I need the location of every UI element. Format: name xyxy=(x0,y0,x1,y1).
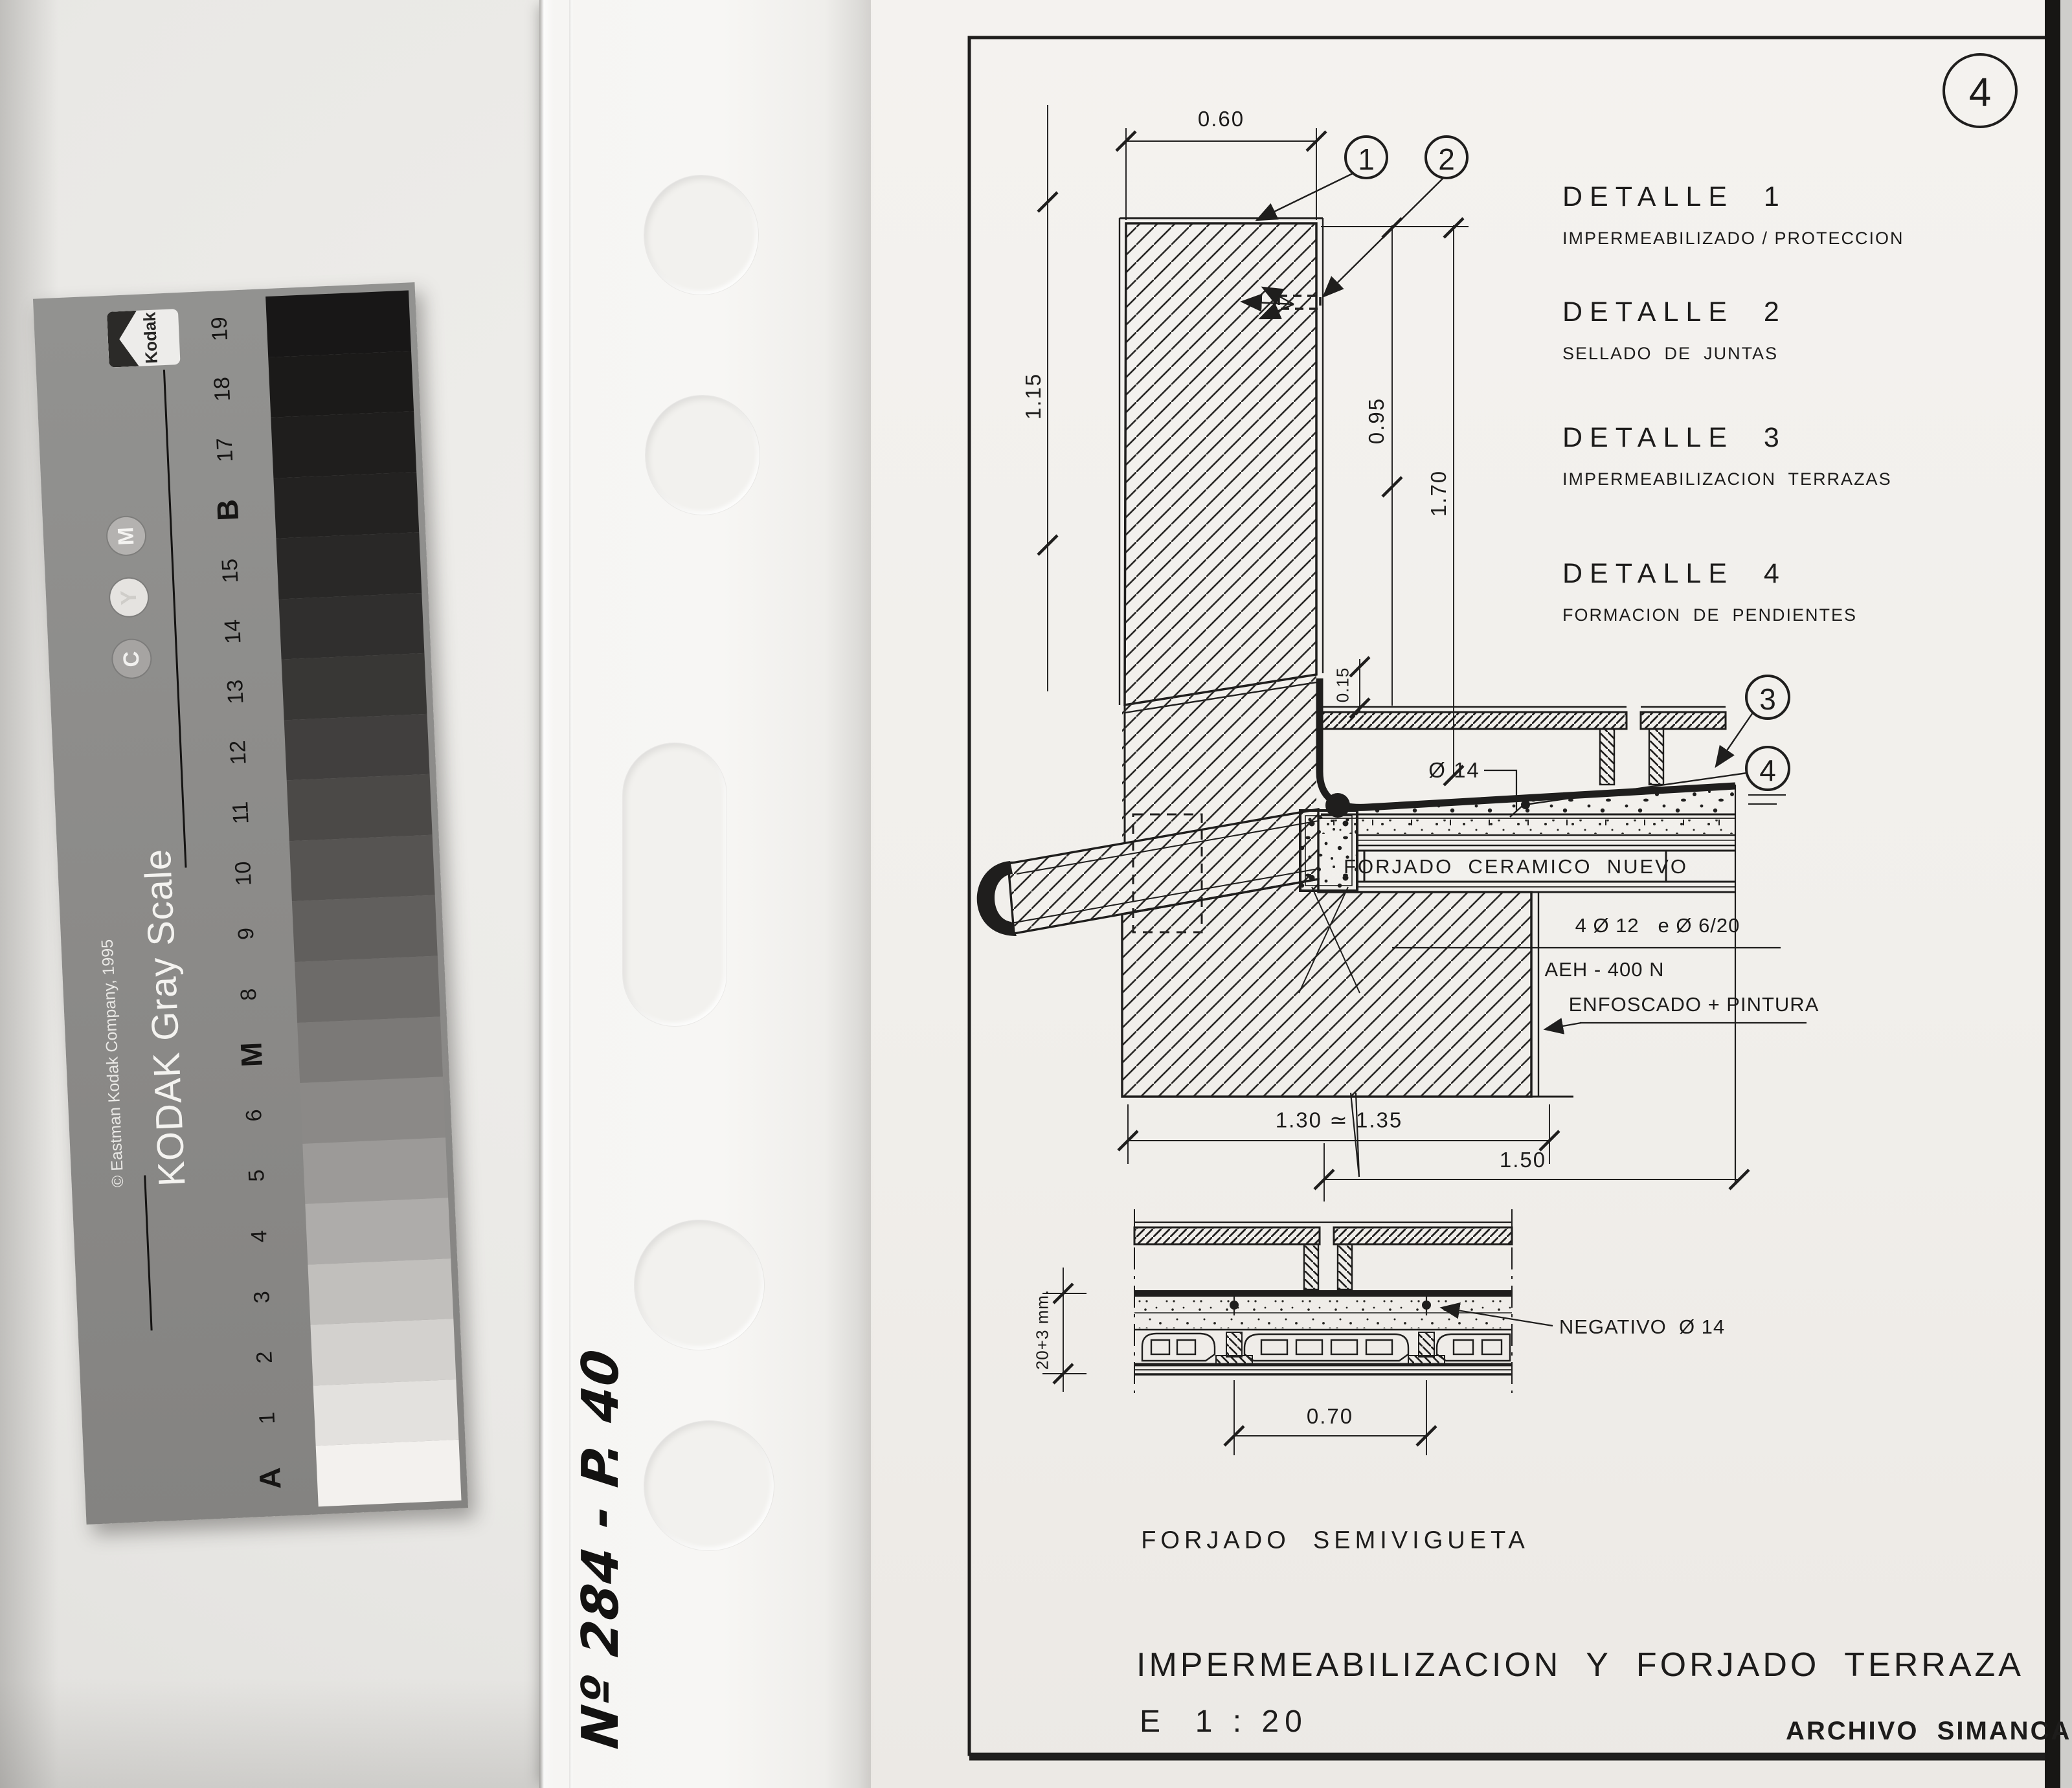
gray-scale-label: 18 xyxy=(208,373,236,405)
kodak-logo-text: Kodak xyxy=(140,312,162,364)
label-rebar: 4 Ø 12 e Ø 6/20 xyxy=(1575,914,1740,937)
callout-4: 4 xyxy=(1759,753,1776,788)
gray-scale-label: 10 xyxy=(230,858,257,890)
registration-circle-c: C xyxy=(112,639,151,678)
label-negative-rebar: NEGATIVO Ø 14 xyxy=(1559,1315,1725,1339)
gray-scale-label: B xyxy=(214,494,241,526)
legend-subtitle-2: SELLADO DE JUNTAS xyxy=(1562,344,1786,364)
gray-scale-label: 14 xyxy=(220,616,247,648)
gray-patch xyxy=(300,1077,445,1143)
gray-patch xyxy=(305,1198,451,1264)
punched-hole xyxy=(644,175,758,295)
dim-parapet-height-left: 1.15 xyxy=(1021,373,1046,419)
gray-scale-label: 11 xyxy=(227,797,254,829)
gray-patch xyxy=(295,955,440,1022)
dim-drain-diameter: Ø 14 xyxy=(1428,758,1480,783)
legend-item-1: DETALLE 1 IMPERMEABILIZADO / PROTECCION xyxy=(1562,181,1904,249)
gray-scale-label: 12 xyxy=(225,737,252,769)
gray-scale-label: 13 xyxy=(222,676,249,708)
gray-patch xyxy=(276,532,422,599)
callout-2: 2 xyxy=(1438,142,1455,177)
dim-wall-thickness: 1.30 ≃ 1.35 xyxy=(1276,1108,1402,1133)
gray-patch xyxy=(279,593,425,660)
gray-scale-label: 1 xyxy=(254,1402,281,1435)
title-block-scale: E 1 : 20 xyxy=(1140,1704,1308,1739)
gray-scale-label: 19 xyxy=(206,313,233,345)
label-wall-finish: ENFOSCADO + PINTURA xyxy=(1569,993,1819,1016)
gray-patch xyxy=(282,653,427,720)
dim-parapet-height-right: 0.95 xyxy=(1364,397,1389,444)
plastic-sleeve-strip: Nº 284 - P. 40 xyxy=(539,0,871,1788)
gray-scale-label: 5 xyxy=(243,1159,270,1192)
gray-patch xyxy=(316,1440,462,1506)
page-number: 4 xyxy=(1969,70,1991,116)
card-copyright: © Eastman Kodak Company, 1995 xyxy=(98,939,128,1187)
legend-subtitle-4: FORMACION DE PENDIENTES xyxy=(1562,605,1857,625)
legend-item-4: DETALLE 4 FORMACION DE PENDIENTES xyxy=(1562,558,1857,625)
punched-hole xyxy=(646,396,760,515)
gray-scale-label: M xyxy=(238,1038,265,1071)
gray-scale-label: 15 xyxy=(217,555,244,587)
callout-3: 3 xyxy=(1759,682,1776,717)
title-block-title: IMPERMEABILIZACION Y FORJADO TERRAZA xyxy=(1136,1646,2024,1684)
dim-total-height: 1.70 xyxy=(1426,470,1451,517)
card-rule-upper xyxy=(163,370,187,867)
gray-scale-label: 6 xyxy=(240,1099,267,1132)
label-section-name: FORJADO SEMIVIGUETA xyxy=(1141,1527,1529,1555)
punched-hole xyxy=(644,1421,774,1550)
dim-coping: 0.15 xyxy=(1333,667,1353,703)
registration-letter: C xyxy=(118,651,144,667)
kodak-logo: Kodak xyxy=(107,309,181,368)
registration-letter: M xyxy=(113,526,139,546)
legend-title-1: DETALLE 1 xyxy=(1562,181,1904,213)
kodak-gray-scale-card: Kodak KODAK Gray Scale © Eastman Kodak C… xyxy=(33,282,468,1525)
dim-parapet-width: 0.60 xyxy=(1198,107,1244,131)
gray-patch xyxy=(292,895,438,962)
gray-patch xyxy=(273,472,419,539)
gray-scale-label: 2 xyxy=(251,1341,278,1374)
gray-patch xyxy=(302,1137,448,1204)
gray-scale-label: 17 xyxy=(211,434,238,466)
gray-patch xyxy=(311,1319,456,1385)
card-title: KODAK Gray Scale xyxy=(136,848,194,1187)
gray-patch xyxy=(284,714,430,781)
kodak-logo-arrow-icon xyxy=(107,311,139,368)
legend-title-3: DETALLE 3 xyxy=(1562,422,1892,454)
gray-patch xyxy=(271,411,416,478)
gray-patch xyxy=(265,290,411,357)
registration-circle-y: Y xyxy=(109,578,148,617)
legend-item-2: DETALLE 2 SELLADO DE JUNTAS xyxy=(1562,296,1786,364)
label-steel-grade: AEH - 400 N xyxy=(1544,958,1664,981)
gray-scale-label: 9 xyxy=(232,917,260,950)
punched-slot xyxy=(623,743,726,1026)
gray-patch xyxy=(308,1258,453,1325)
dim-slab-thickness: 20+3 mm. xyxy=(1033,1290,1053,1370)
gray-scale-label: 8 xyxy=(235,978,262,1011)
gray-patch xyxy=(313,1380,459,1446)
photo-scene: 4 1 2 3 4 0.60 1.15 0.95 1.70 0.15 Ø 14 … xyxy=(0,0,2072,1788)
gray-patch xyxy=(268,351,414,418)
registration-circle-m: M xyxy=(107,517,146,555)
dim-slab-span: 1.50 xyxy=(1500,1148,1546,1172)
punched-hole xyxy=(635,1220,764,1350)
gray-scale-label: 3 xyxy=(249,1281,276,1313)
title-block-archive: ARCHIVO SIMANCAS xyxy=(1786,1717,2072,1746)
gray-scale-label: 4 xyxy=(245,1220,273,1253)
card-rule-lower xyxy=(144,1175,152,1330)
legend-title-2: DETALLE 2 xyxy=(1562,296,1786,328)
registration-letter: Y xyxy=(116,590,142,605)
callout-1: 1 xyxy=(1358,142,1375,177)
legend-subtitle-3: IMPERMEABILIZACION TERRAZAS xyxy=(1562,469,1892,489)
label-forjado-nuevo: FORJADO CERAMICO NUEVO xyxy=(1344,855,1688,878)
gray-patch xyxy=(289,835,435,902)
legend-item-3: DETALLE 3 IMPERMEABILIZACION TERRAZAS xyxy=(1562,422,1892,489)
legend-title-4: DETALLE 4 xyxy=(1562,558,1857,590)
gray-patch xyxy=(297,1016,443,1083)
dim-joist-spacing: 0.70 xyxy=(1307,1404,1353,1429)
gray-scale-label: A xyxy=(256,1462,284,1495)
gray-patch xyxy=(287,774,433,841)
legend-subtitle-1: IMPERMEABILIZADO / PROTECCION xyxy=(1562,229,1904,249)
handwritten-reference-note: Nº 284 - P. 40 xyxy=(572,1345,630,1751)
